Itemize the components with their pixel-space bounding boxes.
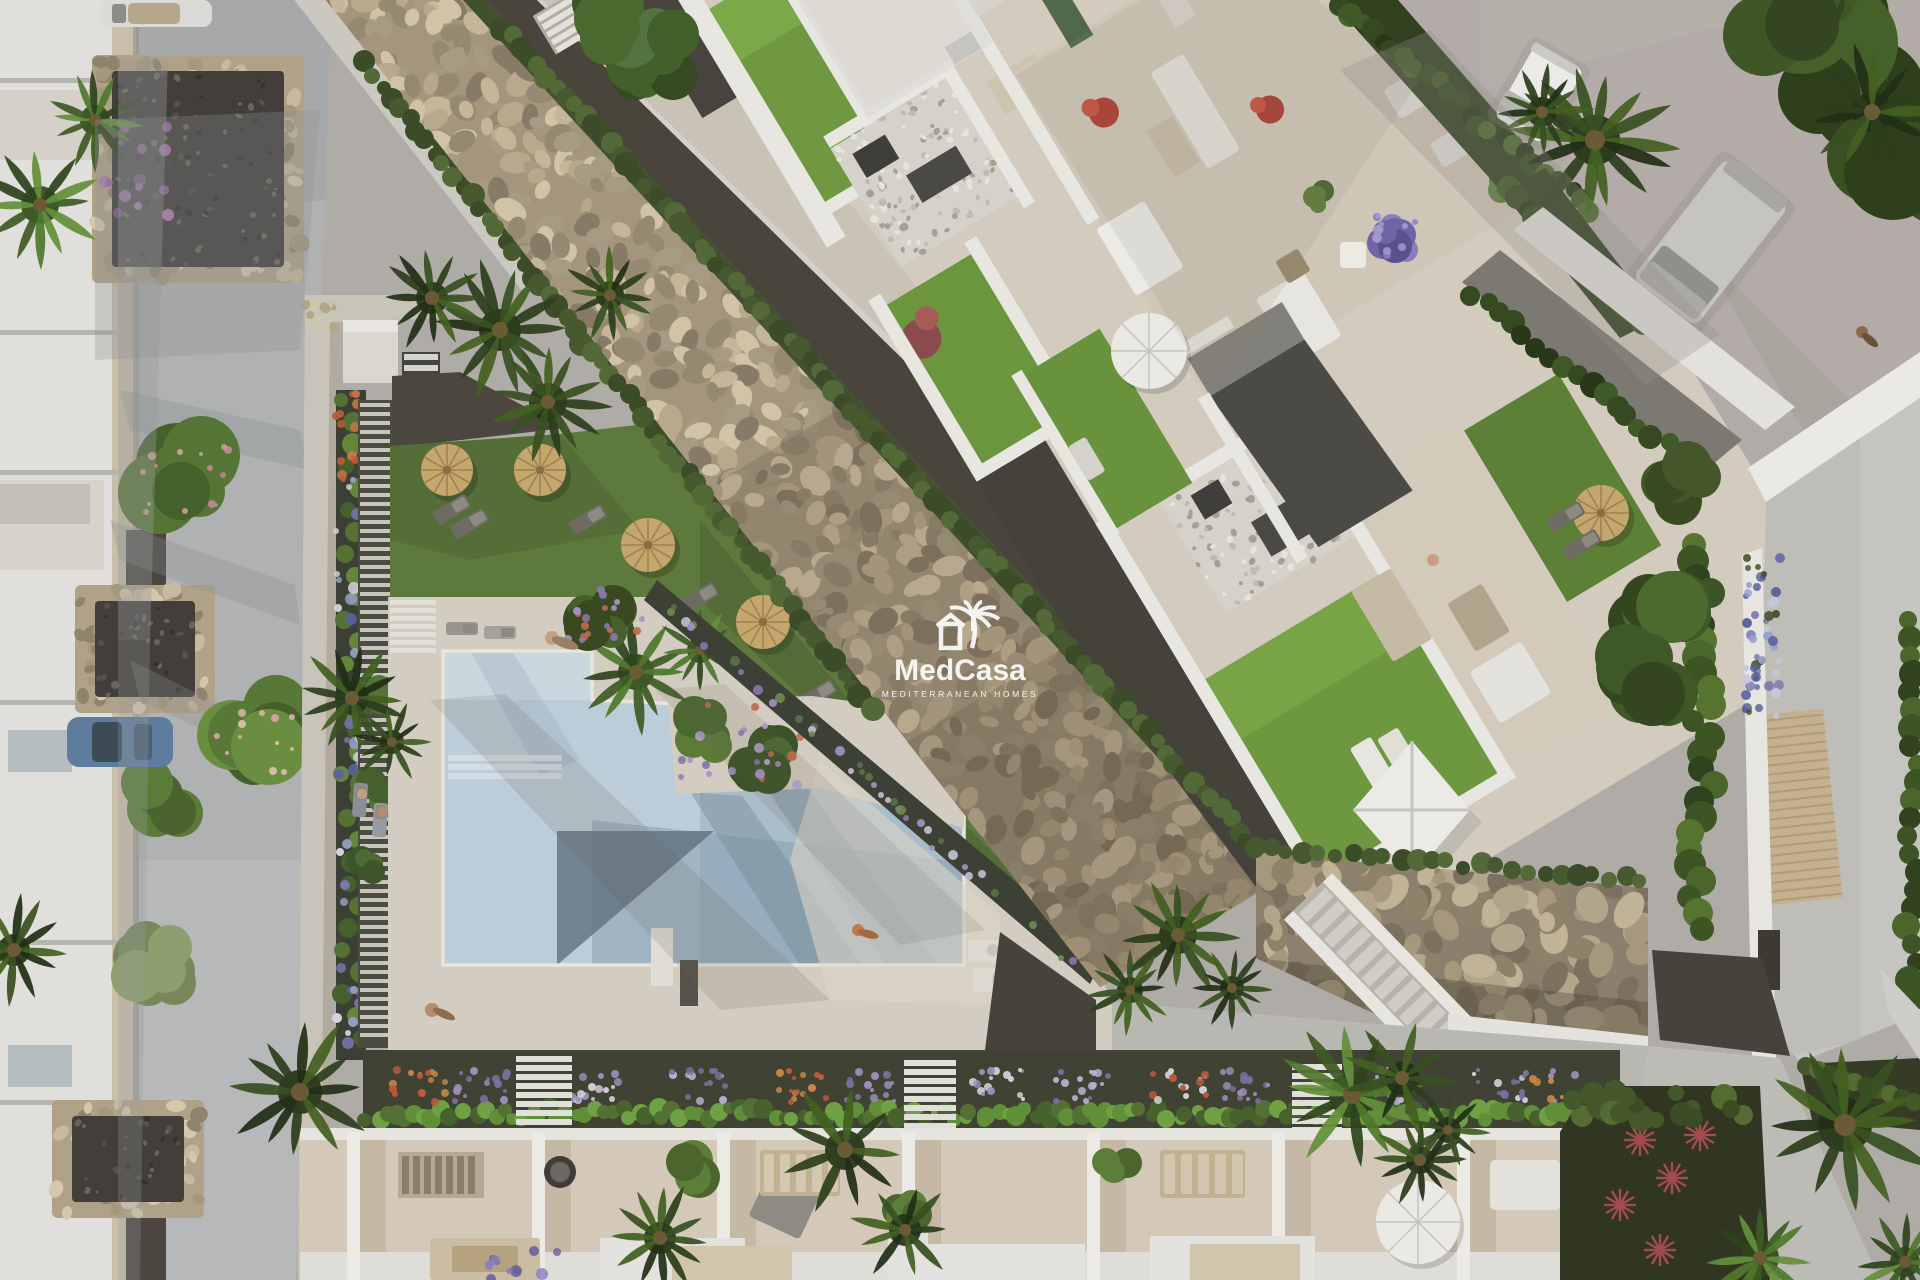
svg-text:MedCasa: MedCasa — [894, 654, 1026, 687]
svg-text:MEDITERRANEAN HOMES: MEDITERRANEAN HOMES — [882, 689, 1039, 699]
